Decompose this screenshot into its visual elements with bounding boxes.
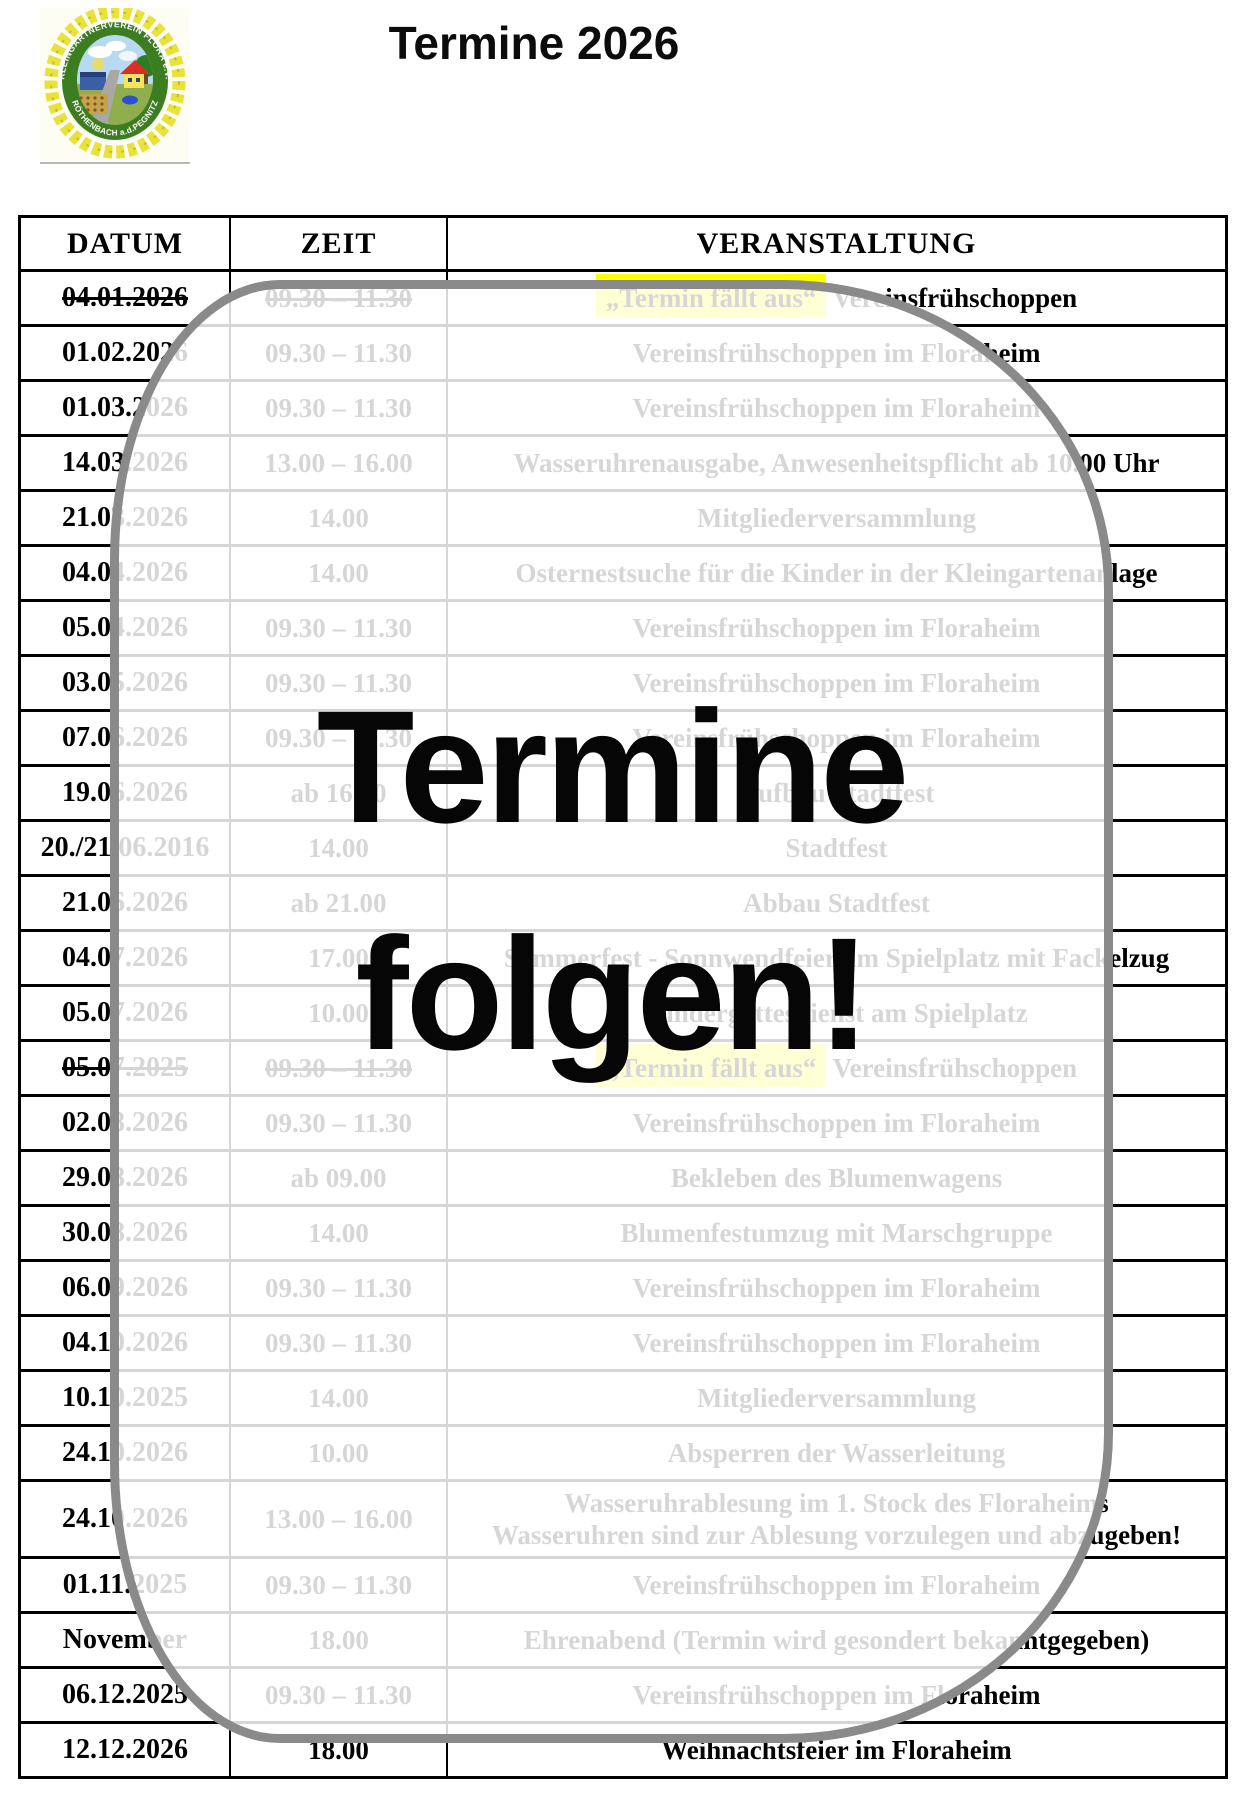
page-title: Termine 2026	[0, 16, 1068, 70]
termine-folgen-overlay: Termine folgen!	[110, 280, 1113, 1743]
column-header-datum: DATUM	[21, 218, 231, 269]
cell-datum: 12.12.2026	[21, 1724, 231, 1776]
column-header-veranstaltung: VERANSTALTUNG	[448, 218, 1225, 269]
scanned-schedule-page: KLEINGÄRTNERVEREIN FLORA e.V. RÖTHENBACH…	[0, 0, 1246, 1794]
overlay-note-line2: folgen!	[119, 880, 1104, 1107]
column-header-zeit: ZEIT	[231, 218, 448, 269]
table-header-row: DATUM ZEIT VERANSTALTUNG	[21, 218, 1225, 272]
overlay-note: Termine folgen!	[119, 653, 1104, 1107]
overlay-note-line1: Termine	[119, 653, 1104, 880]
